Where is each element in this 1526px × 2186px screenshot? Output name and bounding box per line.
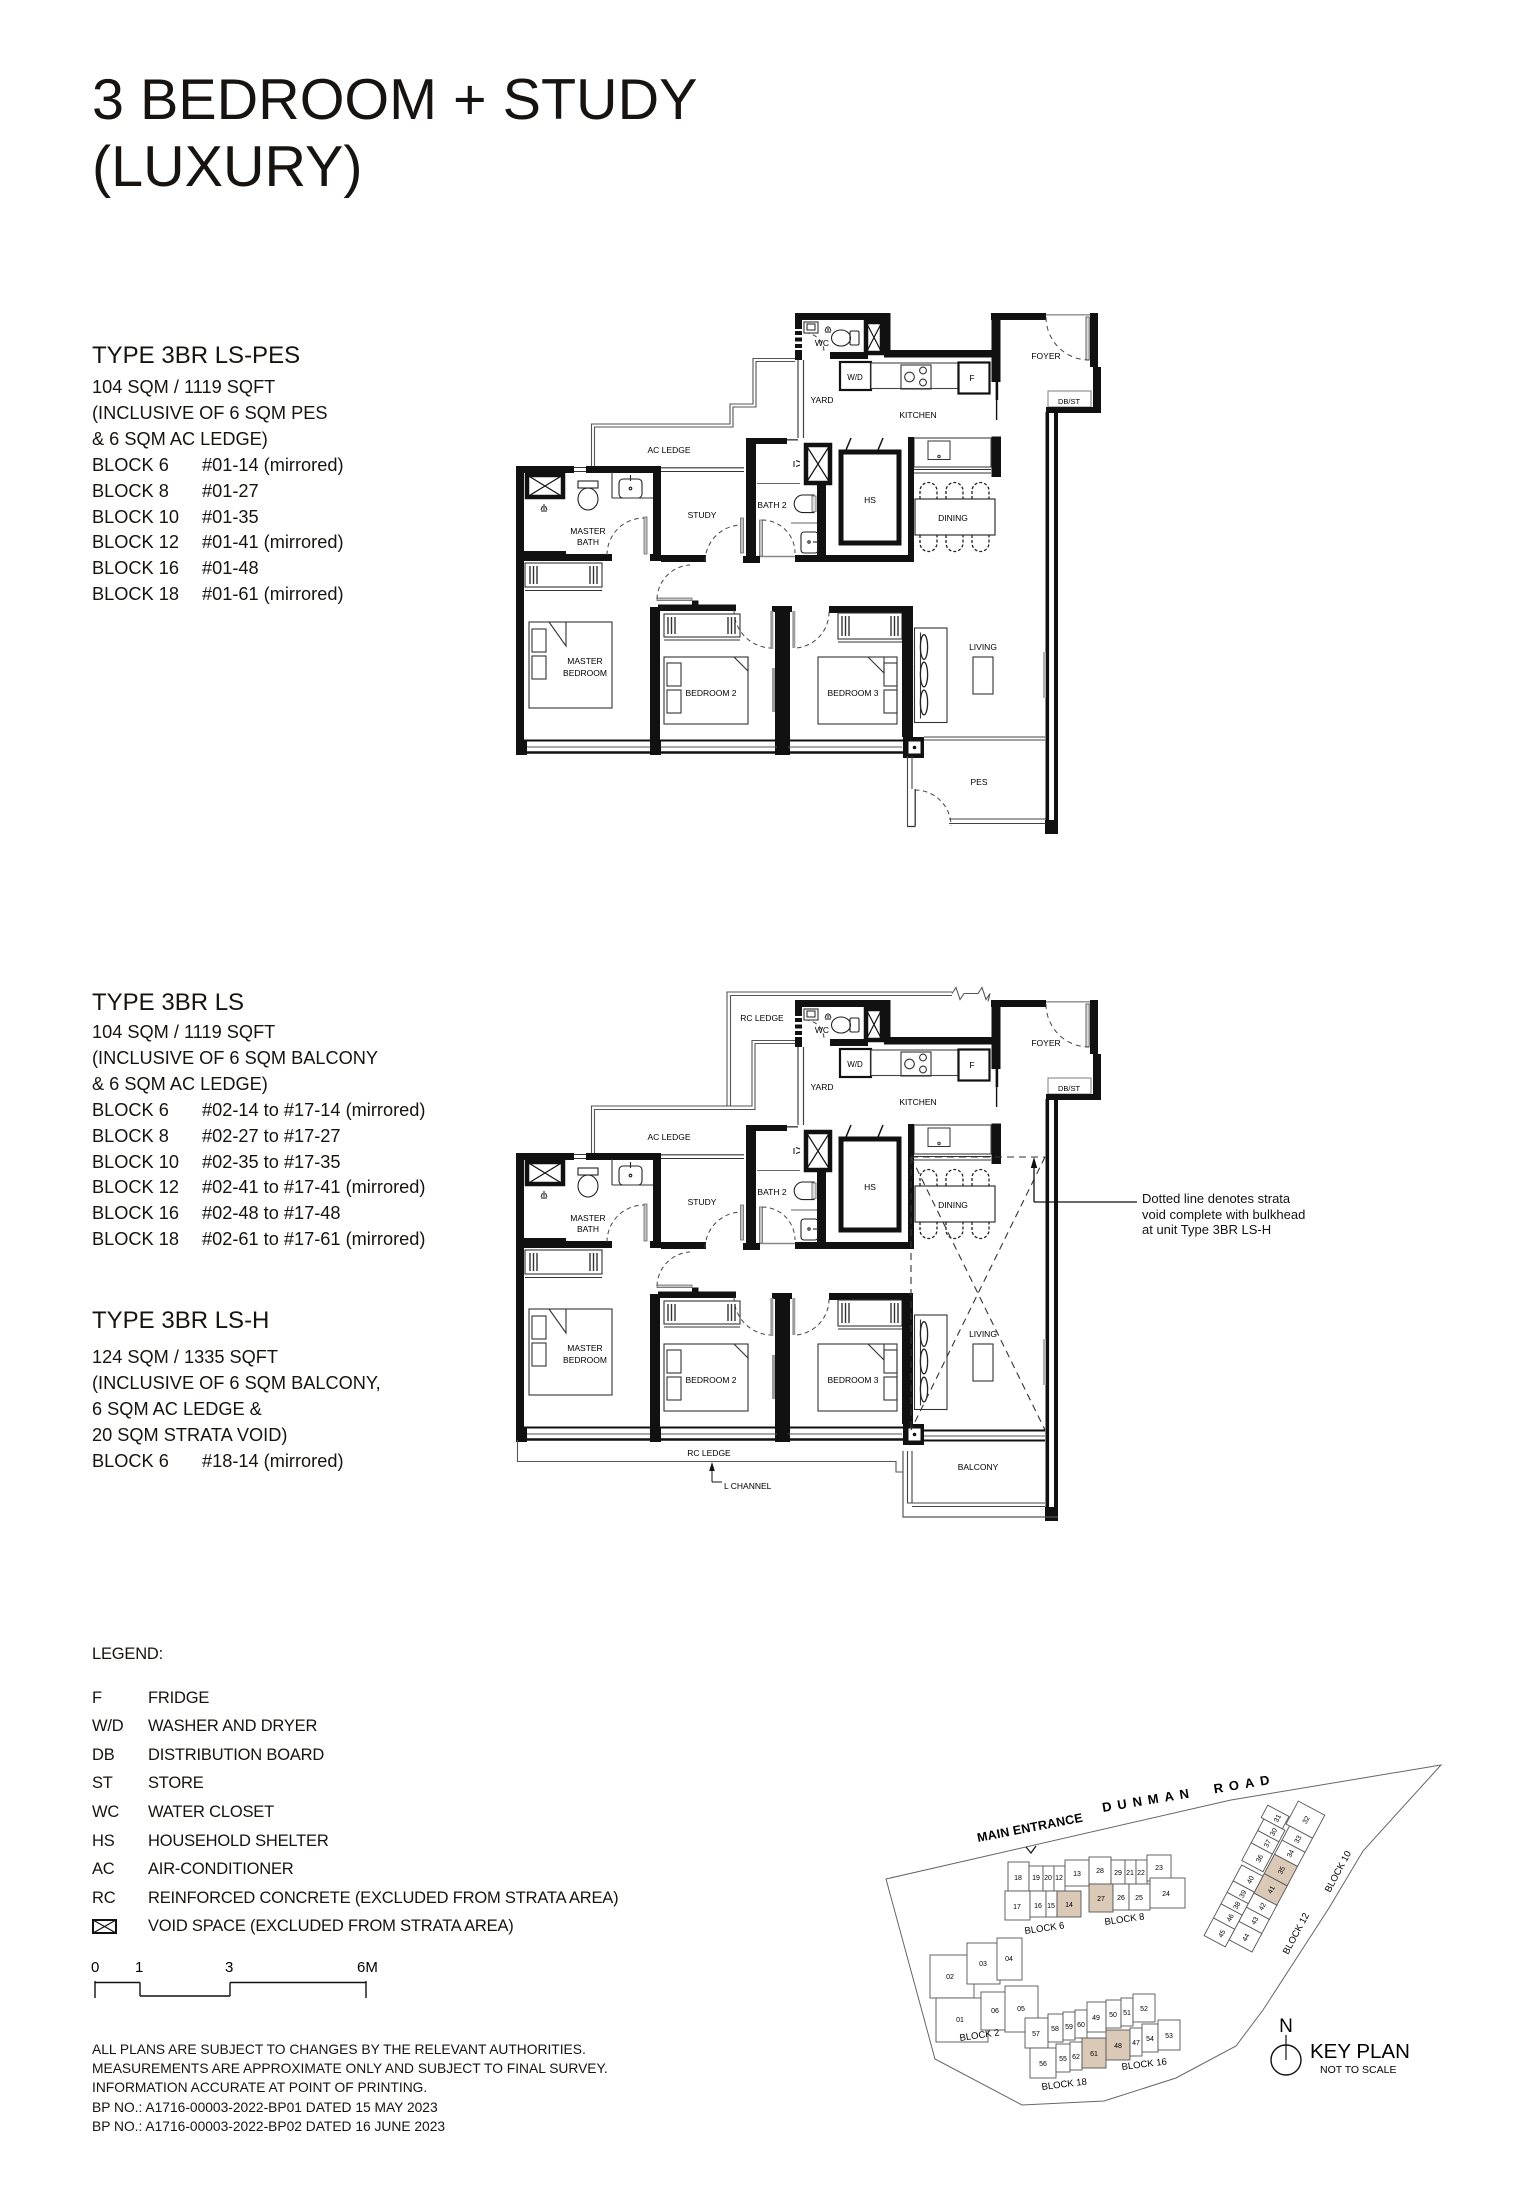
- svg-text:BLOCK 6: BLOCK 6: [1024, 1920, 1065, 1936]
- svg-text:DUNMAN ROAD: DUNMAN ROAD: [1101, 1771, 1276, 1815]
- svg-text:0: 0: [91, 1959, 99, 1976]
- svg-text:58: 58: [1051, 2026, 1059, 2033]
- svg-text:MAIN ENTRANCE: MAIN ENTRANCE: [976, 1811, 1084, 1845]
- svg-text:01: 01: [956, 2017, 964, 2024]
- svg-text:50: 50: [1109, 2012, 1117, 2019]
- svg-text:27: 27: [1097, 1896, 1105, 1903]
- svg-text:14: 14: [1065, 1902, 1073, 1909]
- svg-text:55: 55: [1059, 2056, 1067, 2063]
- svg-text:54: 54: [1146, 2036, 1154, 2043]
- svg-text:48: 48: [1114, 2043, 1122, 2050]
- svg-text:NOT TO SCALE: NOT TO SCALE: [1320, 2064, 1396, 2076]
- svg-text:21: 21: [1126, 1870, 1134, 1877]
- svg-text:22: 22: [1137, 1870, 1145, 1877]
- svg-text:BALCONY: BALCONY: [958, 1462, 999, 1472]
- svg-text:49: 49: [1092, 2015, 1100, 2022]
- svg-text:61: 61: [1090, 2051, 1098, 2058]
- svg-text:51: 51: [1123, 2010, 1131, 2017]
- svg-text:BLOCK 10: BLOCK 10: [1323, 1849, 1354, 1894]
- svg-text:13: 13: [1073, 1871, 1081, 1878]
- svg-text:17: 17: [1013, 1904, 1021, 1911]
- svg-text:28: 28: [1096, 1868, 1104, 1875]
- svg-text:RC LEDGE: RC LEDGE: [740, 1013, 784, 1023]
- svg-text:62: 62: [1072, 2054, 1080, 2061]
- svg-text:24: 24: [1162, 1891, 1170, 1898]
- svg-text:53: 53: [1165, 2033, 1173, 2040]
- svg-text:N: N: [1279, 2016, 1293, 2037]
- svg-text:25: 25: [1135, 1895, 1143, 1902]
- svg-text:PES: PES: [970, 777, 987, 787]
- svg-text:20: 20: [1044, 1875, 1052, 1882]
- svg-text:59: 59: [1065, 2024, 1073, 2031]
- svg-text:03: 03: [979, 1961, 987, 1968]
- svg-text:BLOCK 18: BLOCK 18: [1041, 2077, 1087, 2093]
- svg-text:BLOCK 8: BLOCK 8: [1104, 1911, 1145, 1927]
- svg-text:05: 05: [1017, 2006, 1025, 2013]
- svg-text:60: 60: [1077, 2022, 1085, 2029]
- svg-text:1: 1: [135, 1959, 143, 1976]
- svg-text:47: 47: [1132, 2040, 1140, 2047]
- svg-text:02: 02: [946, 1974, 954, 1981]
- svg-text:16: 16: [1034, 1903, 1042, 1910]
- svg-text:04: 04: [1005, 1956, 1013, 1963]
- svg-text:KEY PLAN: KEY PLAN: [1310, 2040, 1410, 2063]
- svg-text:29: 29: [1114, 1870, 1122, 1877]
- svg-text:06: 06: [991, 2008, 999, 2015]
- svg-text:57: 57: [1032, 2031, 1040, 2038]
- svg-text:BLOCK 12: BLOCK 12: [1281, 1911, 1312, 1956]
- svg-text:15: 15: [1047, 1903, 1055, 1910]
- svg-text:18: 18: [1014, 1875, 1022, 1882]
- svg-text:3: 3: [225, 1959, 233, 1976]
- svg-text:L CHANNEL: L CHANNEL: [724, 1481, 772, 1491]
- svg-text:52: 52: [1140, 2006, 1148, 2013]
- svg-text:12: 12: [1055, 1875, 1063, 1882]
- svg-text:56: 56: [1039, 2061, 1047, 2068]
- svg-text:23: 23: [1155, 1865, 1163, 1872]
- svg-text:RC LEDGE: RC LEDGE: [687, 1448, 731, 1458]
- svg-text:19: 19: [1032, 1875, 1040, 1882]
- svg-text:26: 26: [1117, 1895, 1125, 1902]
- svg-text:6M: 6M: [357, 1959, 378, 1976]
